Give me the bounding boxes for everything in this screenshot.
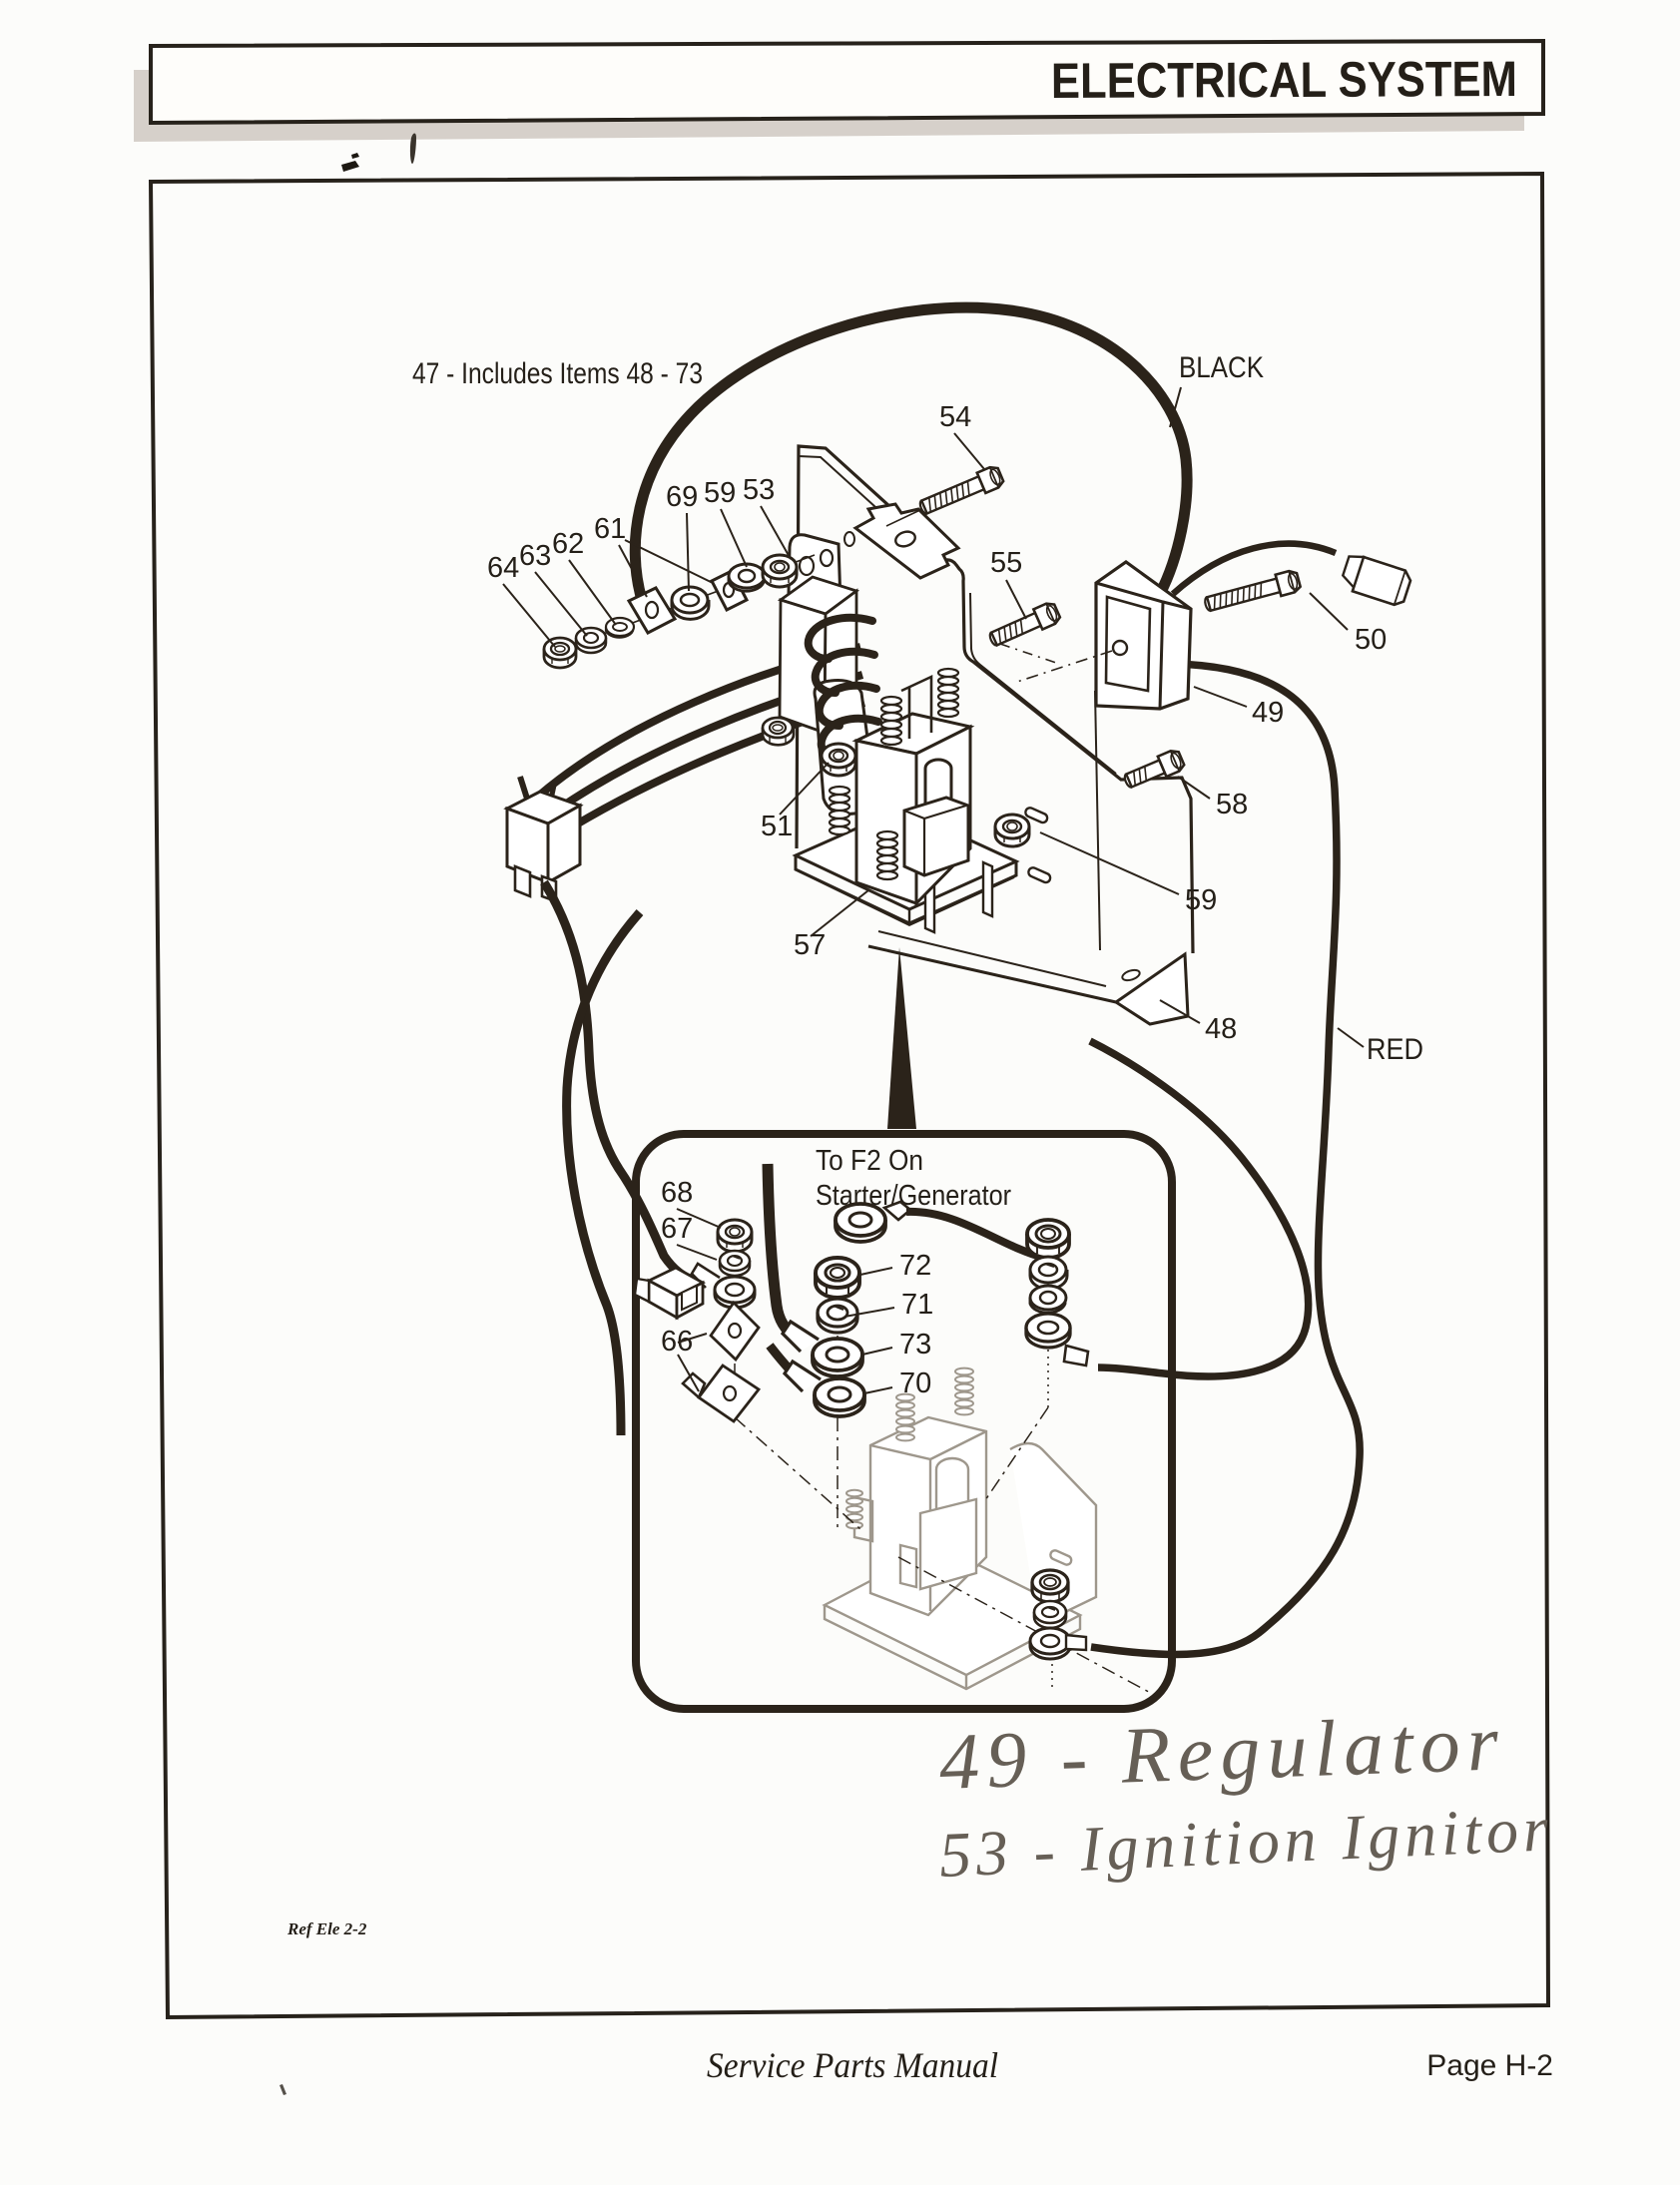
svg-text:48: 48 <box>1205 1013 1237 1045</box>
svg-text:BLACK: BLACK <box>1179 351 1264 384</box>
svg-text:62: 62 <box>552 528 584 560</box>
svg-text:49: 49 <box>1252 697 1284 729</box>
svg-text:50: 50 <box>1355 624 1387 656</box>
svg-text:47 - Includes Items 48 - 73: 47 - Includes Items 48 - 73 <box>412 357 703 390</box>
svg-text:63: 63 <box>519 540 551 572</box>
svg-text:71: 71 <box>901 1289 933 1321</box>
svg-text:73: 73 <box>899 1329 931 1361</box>
svg-text:59: 59 <box>1185 884 1217 916</box>
svg-text:64: 64 <box>487 552 519 584</box>
svg-text:72: 72 <box>899 1250 931 1282</box>
svg-text:54: 54 <box>939 401 971 433</box>
svg-text:67: 67 <box>661 1213 693 1245</box>
svg-text:69: 69 <box>666 481 698 513</box>
svg-text:55: 55 <box>990 547 1022 579</box>
svg-text:58: 58 <box>1216 789 1248 820</box>
svg-text:Service Parts Manual: Service Parts Manual <box>707 2045 998 2085</box>
svg-text:Page H-2: Page H-2 <box>1426 2049 1553 2082</box>
svg-text:66: 66 <box>661 1326 693 1358</box>
svg-text:RED: RED <box>1367 1033 1423 1066</box>
svg-text:61: 61 <box>594 513 626 545</box>
svg-text:59: 59 <box>704 477 736 509</box>
svg-text:68: 68 <box>661 1177 693 1209</box>
svg-text:53: 53 <box>743 474 775 506</box>
svg-text:ELECTRICAL SYSTEM: ELECTRICAL SYSTEM <box>1051 51 1517 109</box>
svg-text:51: 51 <box>761 811 793 842</box>
svg-text:Ref Ele 2-2: Ref Ele 2-2 <box>286 1919 367 1938</box>
svg-text:57: 57 <box>794 929 826 961</box>
svg-text:To F2 On: To F2 On <box>816 1145 923 1177</box>
svg-text:70: 70 <box>899 1367 931 1399</box>
